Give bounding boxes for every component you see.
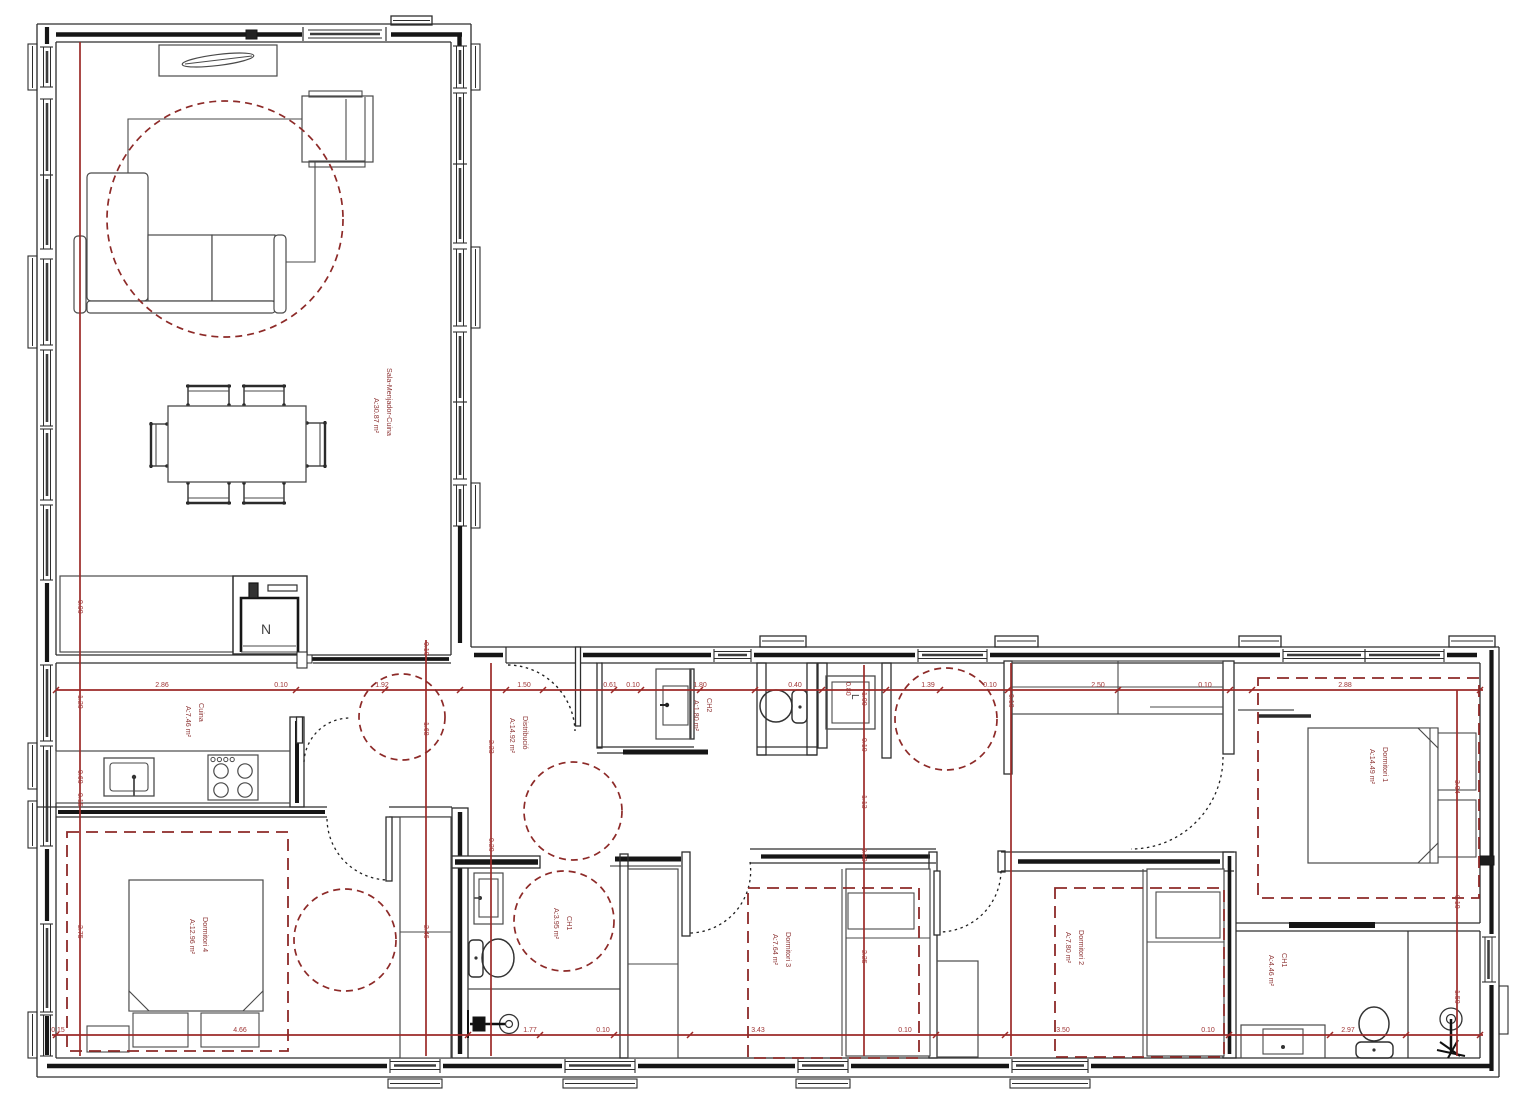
svg-text:0.60: 0.60 (76, 770, 83, 784)
svg-text:2.25: 2.25 (860, 950, 867, 964)
svg-text:2.88: 2.88 (1338, 682, 1352, 689)
svg-text:3.50: 3.50 (1056, 1027, 1070, 1034)
svg-text:0.10: 0.10 (860, 738, 867, 752)
svg-text:0.30: 0.30 (860, 848, 867, 862)
svg-text:A:4.46 m²: A:4.46 m² (1267, 955, 1276, 987)
svg-text:Sala-Menjador-Cuina: Sala-Menjador-Cuina (385, 368, 394, 436)
svg-text:0.10: 0.10 (274, 682, 288, 689)
svg-text:0.10: 0.10 (898, 1027, 912, 1034)
svg-text:0.10: 0.10 (1007, 694, 1014, 708)
svg-text:1.68: 1.68 (422, 722, 429, 736)
svg-text:0.10: 0.10 (1201, 1027, 1215, 1034)
svg-text:Cuina: Cuina (197, 703, 206, 722)
svg-text:0.10: 0.10 (1198, 682, 1212, 689)
svg-text:A:7.46 m²: A:7.46 m² (184, 706, 193, 738)
svg-text:0.10: 0.10 (422, 642, 429, 656)
svg-text:2.50: 2.50 (1091, 682, 1105, 689)
svg-text:0.61: 0.61 (603, 682, 617, 689)
svg-text:A:30.87 m²: A:30.87 m² (372, 398, 381, 434)
svg-text:1.77: 1.77 (523, 1027, 537, 1034)
svg-text:4.66: 4.66 (233, 1027, 247, 1034)
svg-text:3.04: 3.04 (1453, 780, 1460, 794)
svg-text:0.10: 0.10 (596, 1027, 610, 1034)
svg-text:N: N (261, 621, 271, 637)
svg-text:0.15: 0.15 (51, 1027, 65, 1034)
svg-text:A:3.95 m²: A:3.95 m² (552, 908, 561, 940)
svg-text:0.20: 0.20 (487, 838, 494, 852)
svg-text:A:7.64 m²: A:7.64 m² (771, 934, 780, 966)
svg-text:1.50: 1.50 (517, 682, 531, 689)
svg-text:Dormitori 2: Dormitori 2 (1077, 930, 1086, 965)
svg-text:CH2: CH2 (705, 698, 714, 712)
svg-text:A:14.92 m²: A:14.92 m² (508, 718, 517, 754)
svg-text:0.90: 0.90 (76, 600, 83, 614)
svg-text:CH1: CH1 (1280, 953, 1289, 967)
svg-text:Dormitori 3: Dormitori 3 (784, 932, 793, 967)
svg-text:2.46: 2.46 (422, 925, 429, 939)
svg-text:0.40: 0.40 (788, 682, 802, 689)
svg-text:0.10: 0.10 (626, 682, 640, 689)
svg-text:0.80: 0.80 (844, 682, 851, 696)
svg-text:Dormitori 4: Dormitori 4 (201, 917, 210, 952)
svg-text:2.86: 2.86 (155, 682, 169, 689)
svg-text:A:14.49 m²: A:14.49 m² (1368, 749, 1377, 785)
svg-text:A:12.96 m²: A:12.96 m² (188, 919, 197, 955)
svg-text:1.00: 1.00 (860, 692, 867, 706)
svg-text:2.75: 2.75 (76, 925, 83, 939)
svg-text:2.97: 2.97 (1341, 1027, 1355, 1034)
svg-text:2.23: 2.23 (487, 740, 494, 754)
svg-text:A:1.80 m²: A:1.80 m² (692, 700, 701, 732)
svg-text:1.92: 1.92 (375, 682, 389, 689)
svg-text:0.15: 0.15 (76, 793, 83, 807)
svg-text:1.13: 1.13 (860, 795, 867, 809)
svg-text:3.43: 3.43 (751, 1027, 765, 1034)
svg-text:0.10: 0.10 (983, 682, 997, 689)
svg-text:A:7.80 m²: A:7.80 m² (1064, 932, 1073, 964)
svg-text:Dormitori 1: Dormitori 1 (1381, 747, 1390, 782)
svg-text:1.20: 1.20 (76, 695, 83, 709)
svg-text:Distribució: Distribució (521, 716, 530, 750)
svg-text:0.10: 0.10 (1453, 895, 1460, 909)
svg-text:1.80: 1.80 (693, 682, 707, 689)
svg-text:CH1: CH1 (565, 916, 574, 930)
svg-text:1.50: 1.50 (1453, 990, 1460, 1004)
svg-text:1.39: 1.39 (921, 682, 935, 689)
